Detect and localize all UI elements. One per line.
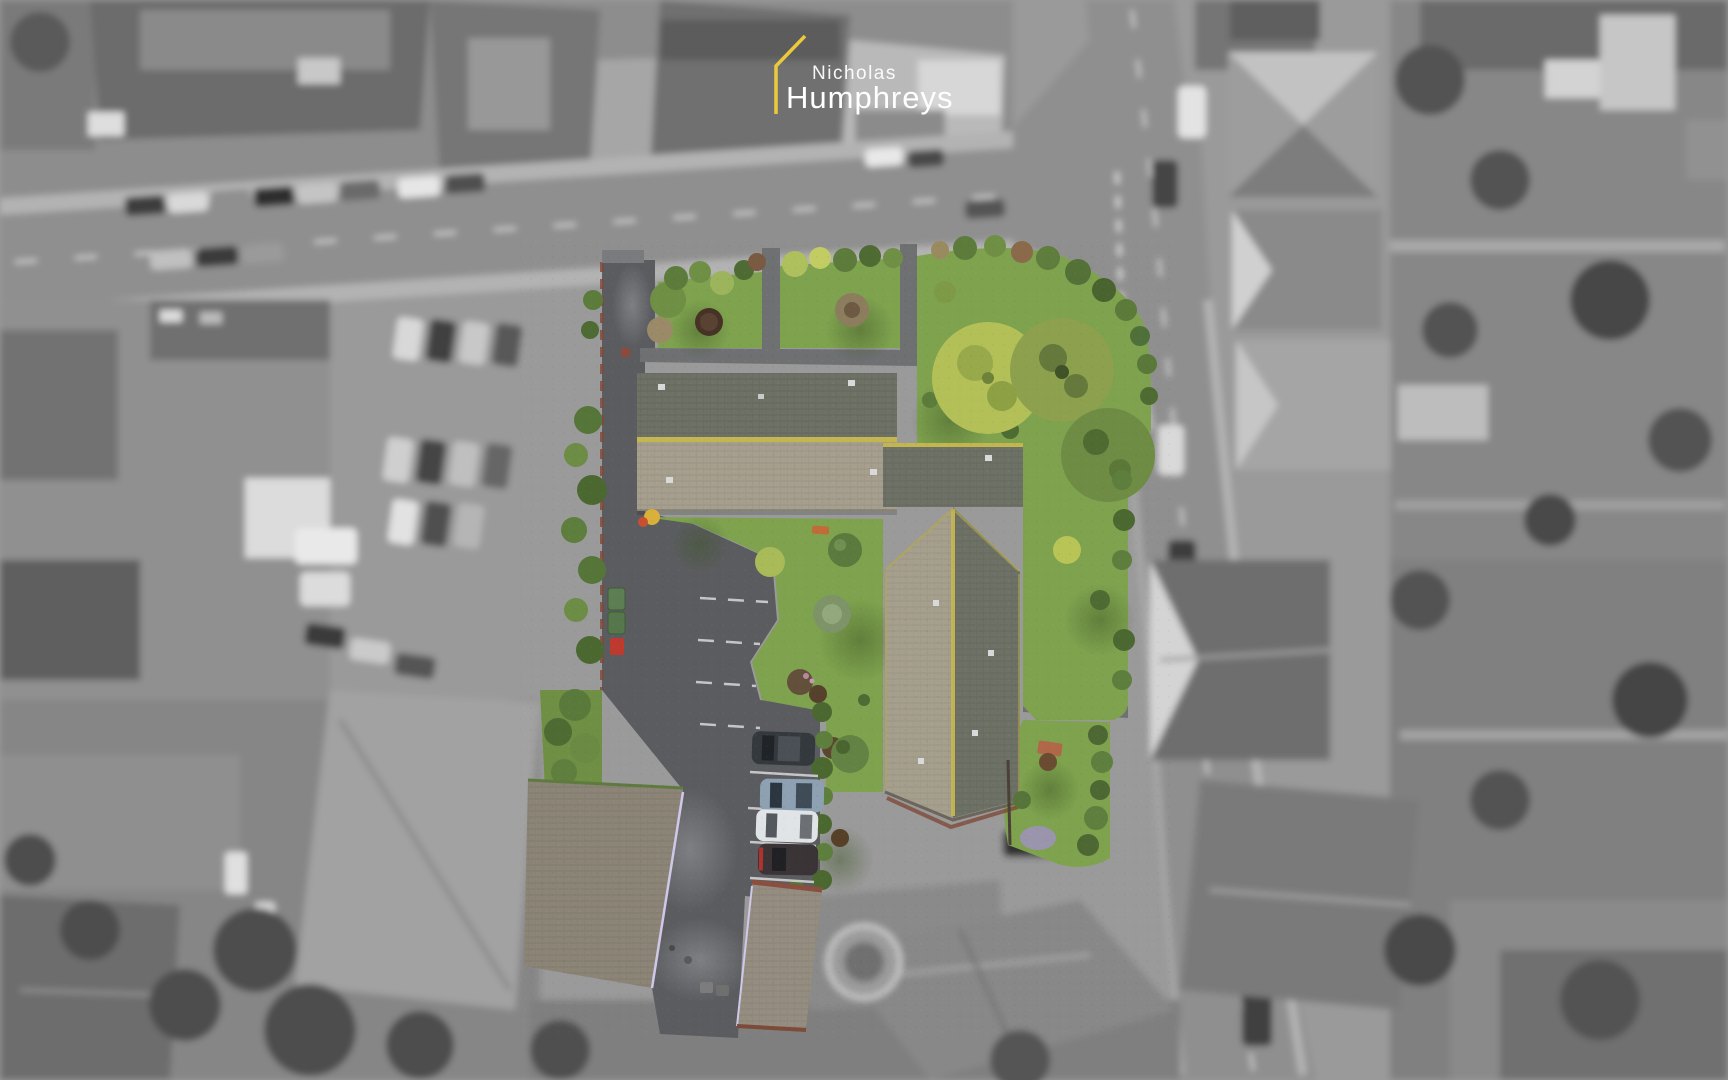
aerial-property-photo: Nicholas Humphreys	[0, 0, 1728, 1080]
photo-grain	[520, 238, 1170, 1038]
logo-name-line2: Humphreys	[786, 80, 954, 115]
featured-property-parcel	[520, 235, 1170, 1038]
south-west-neighbourhood	[0, 690, 540, 1080]
